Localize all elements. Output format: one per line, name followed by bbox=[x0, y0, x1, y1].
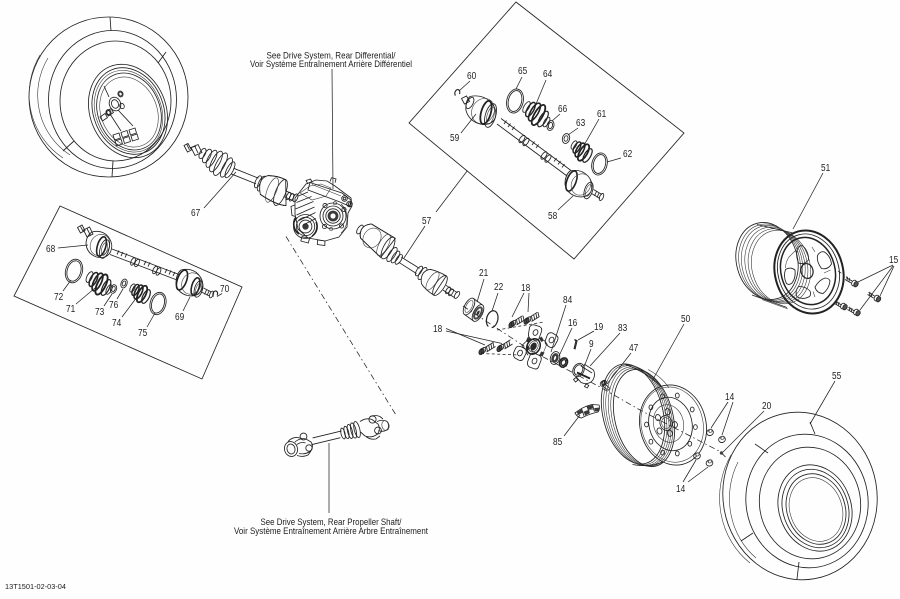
svg-text:85: 85 bbox=[553, 437, 563, 448]
svg-text:18: 18 bbox=[521, 283, 531, 294]
svg-text:Voir Système Entraînement Arri: Voir Système Entraînement Arrière Différ… bbox=[250, 59, 412, 70]
svg-text:84: 84 bbox=[563, 295, 573, 306]
svg-text:59: 59 bbox=[450, 133, 460, 144]
svg-text:69: 69 bbox=[175, 312, 185, 323]
svg-text:16: 16 bbox=[568, 318, 578, 329]
svg-text:50: 50 bbox=[681, 314, 691, 325]
svg-text:14: 14 bbox=[725, 392, 735, 403]
svg-text:71: 71 bbox=[66, 304, 76, 315]
svg-text:21: 21 bbox=[479, 268, 489, 279]
svg-text:19: 19 bbox=[594, 322, 604, 333]
svg-text:70: 70 bbox=[220, 284, 230, 295]
svg-text:76: 76 bbox=[109, 300, 119, 311]
svg-text:65: 65 bbox=[518, 66, 528, 77]
svg-text:83: 83 bbox=[618, 323, 628, 334]
svg-text:67: 67 bbox=[191, 208, 201, 219]
svg-text:74: 74 bbox=[112, 318, 122, 329]
svg-text:61: 61 bbox=[597, 109, 607, 120]
svg-text:55: 55 bbox=[832, 371, 842, 382]
svg-text:9: 9 bbox=[589, 339, 594, 350]
svg-text:15: 15 bbox=[889, 255, 899, 266]
svg-text:20: 20 bbox=[762, 401, 772, 412]
svg-text:66: 66 bbox=[558, 104, 568, 115]
svg-text:73: 73 bbox=[95, 307, 105, 318]
svg-text:13T1501-02-03-04: 13T1501-02-03-04 bbox=[5, 582, 66, 591]
svg-text:68: 68 bbox=[46, 244, 56, 255]
svg-text:75: 75 bbox=[138, 328, 148, 339]
svg-text:72: 72 bbox=[54, 292, 64, 303]
svg-text:57: 57 bbox=[422, 216, 432, 227]
svg-text:51: 51 bbox=[821, 163, 831, 174]
svg-text:47: 47 bbox=[629, 343, 639, 354]
svg-text:60: 60 bbox=[467, 71, 477, 82]
svg-text:64: 64 bbox=[543, 69, 553, 80]
svg-text:62: 62 bbox=[623, 149, 633, 160]
svg-text:18: 18 bbox=[433, 324, 443, 335]
svg-text:Voir Système Entraînement Arri: Voir Système Entraînement Arrière Arbre … bbox=[234, 526, 428, 537]
svg-text:58: 58 bbox=[548, 211, 558, 222]
svg-text:14: 14 bbox=[676, 484, 686, 495]
svg-text:22: 22 bbox=[494, 282, 504, 293]
svg-text:63: 63 bbox=[576, 118, 586, 129]
